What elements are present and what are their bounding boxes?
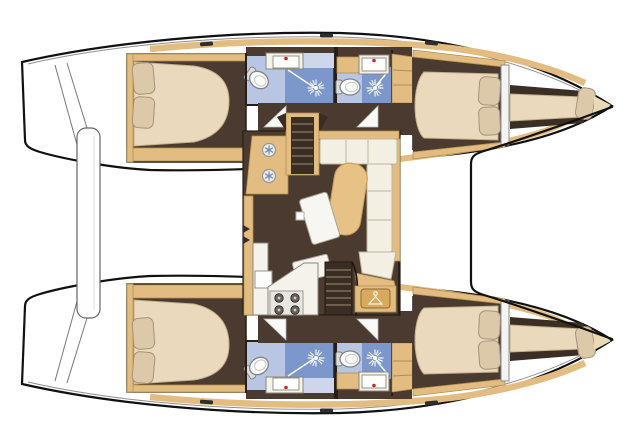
fwd-head-toilet	[336, 79, 360, 95]
snowflake-icon	[263, 144, 276, 157]
sofa-backrest	[319, 131, 399, 139]
pillow	[478, 106, 500, 135]
pillow	[478, 76, 501, 105]
fwd-head-shelf	[337, 57, 359, 73]
sofa-cushions-top	[320, 139, 397, 164]
aft-head-panel	[303, 53, 334, 68]
aft-cabin	[127, 54, 246, 162]
galley-cabinet	[244, 196, 253, 315]
forward-cabin	[413, 50, 505, 159]
stove	[270, 291, 303, 315]
aft-cabin-trim-bottom	[127, 148, 246, 161]
forward-head	[336, 55, 392, 104]
floorplan-canvas	[0, 0, 640, 446]
aft-head	[243, 53, 334, 104]
shower-spray-icon	[308, 80, 325, 97]
pillow	[132, 96, 155, 128]
table-leg	[296, 212, 304, 220]
sofa-cushions-side	[367, 164, 392, 252]
pillow	[132, 62, 156, 95]
snowflake-icon	[263, 170, 276, 183]
shower-spray-icon	[367, 80, 384, 97]
catamaran-floorplan	[0, 0, 640, 446]
stern-platform	[77, 128, 100, 318]
bow-berth-mattress	[510, 94, 582, 121]
fridge-unit	[246, 136, 288, 194]
aft-cabin-trim-top	[127, 54, 246, 61]
faucet-dot	[372, 59, 376, 63]
salon	[243, 113, 400, 315]
faucet-dot	[284, 57, 288, 61]
heads-block	[243, 47, 412, 105]
berth-bulkhead	[501, 65, 509, 145]
wardrobe	[355, 286, 396, 312]
